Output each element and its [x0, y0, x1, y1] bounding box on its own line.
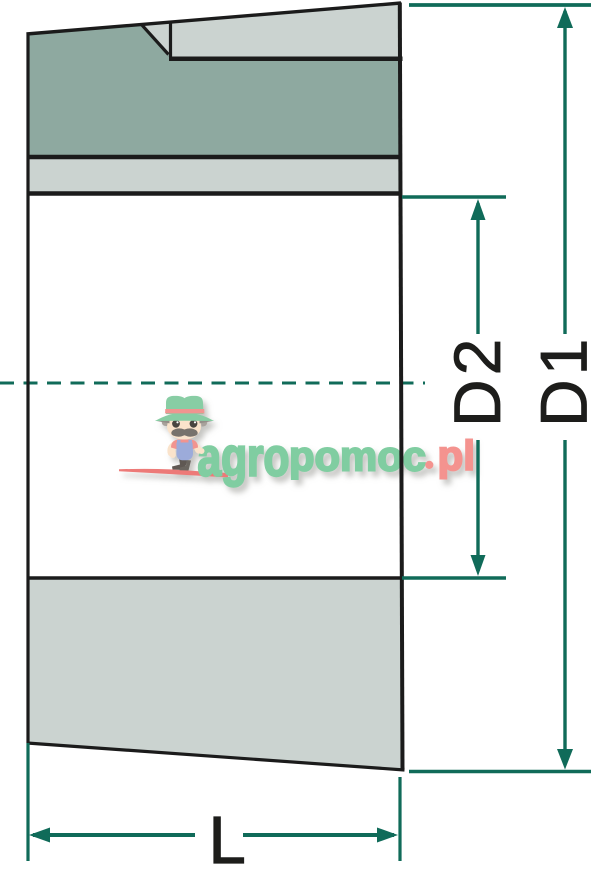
svg-text:L: L	[209, 803, 246, 876]
svg-text:agro: agro	[198, 428, 290, 488]
svg-text:D2: D2	[440, 335, 514, 427]
svg-text:pl: pl	[438, 432, 476, 479]
svg-text:D1: D1	[527, 335, 600, 427]
svg-text:pomoc: pomoc	[289, 433, 426, 480]
